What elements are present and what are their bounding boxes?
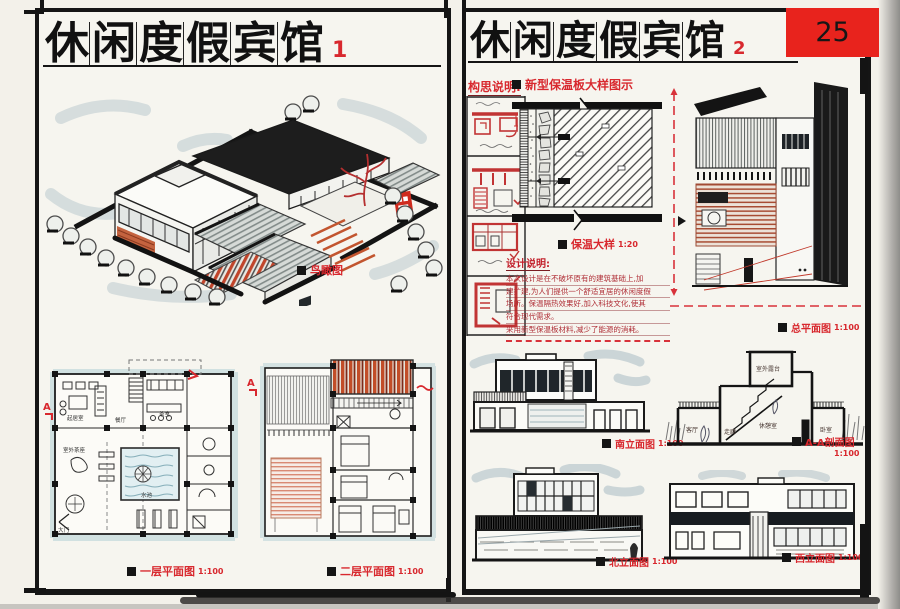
svg-text:休憩室: 休憩室 <box>759 422 777 430</box>
svg-text:大门: 大门 <box>58 526 69 534</box>
sheet-2: 休 闲 度 假 宾 馆 2 构思说明: <box>462 8 871 595</box>
south-elevation-drawing <box>468 348 652 440</box>
design-notes: 设计说明: 本次设计是在不破坏原有的建筑基础上,加 建扩建,为人们提供一个舒适宜… <box>506 252 670 342</box>
title-char: 闲 <box>510 22 553 61</box>
scan-shadow-bottom <box>180 597 880 604</box>
svg-text:水池: 水池 <box>141 491 153 499</box>
bullet-square-icon <box>327 567 336 576</box>
title-char: 馆 <box>682 22 725 61</box>
detail-heading: 新型保温板大样图示 <box>512 76 633 93</box>
red-dims <box>514 114 518 126</box>
pergola-hatch <box>267 376 329 424</box>
frame-tick <box>860 524 869 598</box>
bullet-square-icon <box>596 557 605 566</box>
bullet-square-icon <box>778 323 787 332</box>
site-label-text: 总平面图 <box>791 320 831 335</box>
title-char: 度 <box>136 22 183 65</box>
sheet-1-title: 休 闲 度 假 宾 馆 1 <box>43 22 441 67</box>
plan1-scale: 1:100 <box>198 567 223 576</box>
aerial-label-text: 鸟瞰图 <box>310 262 343 278</box>
notes-heading: 设计说明: <box>506 255 550 271</box>
bullet-square-icon <box>782 553 791 562</box>
section-label: A-A剖面图 1:100 <box>792 434 859 458</box>
sheet-number: 25 <box>815 17 849 48</box>
title-char: 馆 <box>277 22 324 65</box>
plan1-label-text: 一层平面图 <box>140 563 195 579</box>
title-char: 宾 <box>230 22 277 65</box>
south-label-text: 南立面图 <box>615 436 655 451</box>
svg-text:茶室: 茶室 <box>159 410 171 418</box>
plan1-label: 一层平面图 1:100 <box>127 563 223 579</box>
tick-row <box>698 172 770 180</box>
title-char: 宾 <box>639 22 682 61</box>
sheet-number-box: 25 <box>786 8 879 57</box>
frame-tick <box>462 0 466 20</box>
site-label: 总平面图 1:100 <box>778 320 859 335</box>
frame-tick <box>24 10 44 14</box>
frame-tick <box>444 0 448 18</box>
bullet-square-icon <box>558 240 567 249</box>
sheet-2-number: 2 <box>733 38 746 59</box>
building <box>470 354 650 431</box>
site-scale: 1:100 <box>834 323 859 332</box>
floor-plan-2-drawing: A <box>245 350 448 558</box>
notes-line: 符合现代需求。 <box>506 311 670 324</box>
building <box>472 468 648 560</box>
section-scale: 1:100 <box>834 449 859 458</box>
bottom-slab <box>512 214 662 222</box>
title-char: 假 <box>183 22 230 65</box>
frame-tick <box>24 588 46 593</box>
sky-marker <box>702 473 826 478</box>
title-char: 休 <box>43 22 89 65</box>
bullet-square-icon <box>297 266 306 275</box>
title-char: 度 <box>553 22 596 61</box>
west-label-text: 西立面图 <box>795 550 835 565</box>
bullet-square-icon <box>602 439 611 448</box>
notes-line: 场所。保温隔热效果好,加入科技文化,使其 <box>506 298 670 311</box>
detail-label-text: 保温大样 <box>571 236 615 252</box>
sheet-1-number: 1 <box>332 38 347 63</box>
break-mark-2 <box>574 210 582 230</box>
insulation-detail-drawing <box>506 94 668 232</box>
aerial-view-drawing <box>43 76 445 306</box>
svg-text:客厅: 客厅 <box>686 426 698 434</box>
rubble <box>539 112 551 206</box>
north-label-text: 北立面图 <box>609 554 649 569</box>
notes-line: 建扩建,为人们提供一个舒适宜居的休闲度假 <box>506 286 670 299</box>
building-mass <box>692 82 848 290</box>
floor-plan-1-drawing: A 起居室 餐厅 茶室 水池 室外茶座 大门 <box>41 352 248 558</box>
svg-text:卧室: 卧室 <box>820 426 832 434</box>
bullet-square-icon <box>127 567 136 576</box>
title-char: 假 <box>596 22 639 61</box>
roof-louver-terrace <box>331 360 413 394</box>
notes-line: 本次设计是在不破坏原有的建筑基础上,加 <box>506 273 670 286</box>
svg-text:室外露台: 室外露台 <box>756 365 780 373</box>
plants <box>701 400 778 442</box>
svg-text:走廊: 走廊 <box>724 428 736 436</box>
plan2-scale: 1:100 <box>398 567 423 576</box>
section-room-labels: 室外露台 客厅 走廊 休憩室 卧室 <box>686 365 832 436</box>
notes-line: 采用新型保温板材料,减少了能源的消耗。 <box>506 324 670 337</box>
detail-heading-text: 新型保温板大样图示 <box>525 76 633 93</box>
plan2-label-text: 二层平面图 <box>340 563 395 579</box>
site-plan-drawing <box>664 74 870 336</box>
svg-text:室外茶座: 室外茶座 <box>63 446 86 454</box>
sheet-1: 休 闲 度 假 宾 馆 1 <box>35 8 451 595</box>
building <box>664 478 864 558</box>
svg-text:A: A <box>43 402 51 413</box>
title-char: 闲 <box>89 22 136 65</box>
svg-text:A: A <box>247 378 255 389</box>
wall-layers <box>520 109 652 207</box>
title-char: 休 <box>468 22 510 61</box>
plan2-label: 二层平面图 1:100 <box>327 563 423 579</box>
stairs <box>696 254 720 284</box>
svg-text:餐厅: 餐厅 <box>115 416 127 424</box>
bullet-square-icon <box>792 437 801 446</box>
svg-text:起居室: 起居室 <box>67 414 84 422</box>
detail-scale: 1:20 <box>618 240 638 249</box>
north-arrow <box>678 216 686 226</box>
frame-tick <box>860 58 868 94</box>
orange-louver-deck <box>271 458 321 518</box>
aerial-label: 鸟瞰图 <box>297 262 343 278</box>
scan-edge-right <box>878 0 900 609</box>
bullet-square-icon <box>512 80 521 89</box>
west-elevation-label: 西立面图 1:100 <box>782 550 863 565</box>
walkway-hatch <box>331 398 413 408</box>
detail-label: 保温大样 1:20 <box>558 236 638 252</box>
section-label-text: A-A剖面图 <box>805 434 855 449</box>
sheet-2-title: 休 闲 度 假 宾 馆 2 <box>468 22 798 63</box>
